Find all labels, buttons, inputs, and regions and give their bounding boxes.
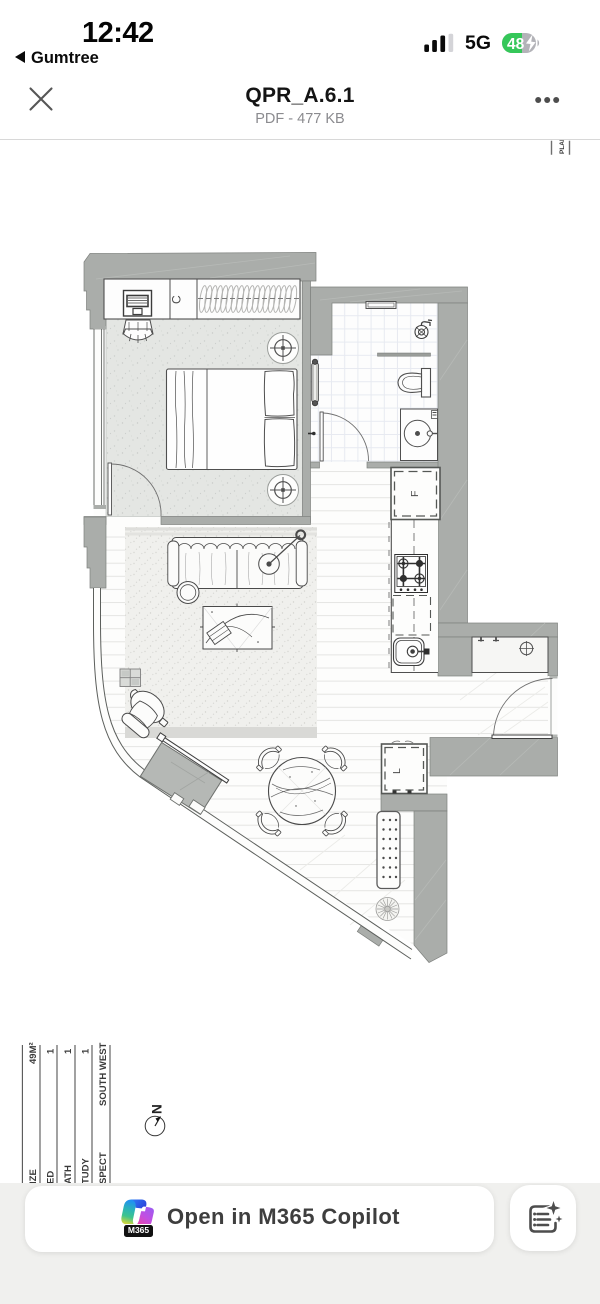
svg-text:IZE: IZE — [28, 1169, 39, 1183]
svg-text:1: 1 — [46, 1048, 57, 1054]
svg-text:TUDY: TUDY — [81, 1157, 92, 1183]
svg-text:F: F — [409, 491, 421, 497]
svg-text:1: 1 — [81, 1048, 92, 1054]
svg-text:C: C — [170, 295, 184, 304]
svg-text:1: 1 — [63, 1048, 74, 1054]
svg-text:49M²: 49M² — [28, 1042, 39, 1064]
svg-text:48: 48 — [507, 36, 525, 53]
svg-text:N: N — [150, 1104, 165, 1114]
svg-text:SPECT: SPECT — [98, 1152, 109, 1183]
svg-text:PLAN: PLAN — [559, 140, 566, 154]
svg-text:L: L — [391, 768, 403, 774]
svg-text:ED: ED — [46, 1171, 57, 1183]
svg-text:SOUTH WEST: SOUTH WEST — [98, 1042, 109, 1106]
svg-text:ATH: ATH — [63, 1165, 74, 1183]
